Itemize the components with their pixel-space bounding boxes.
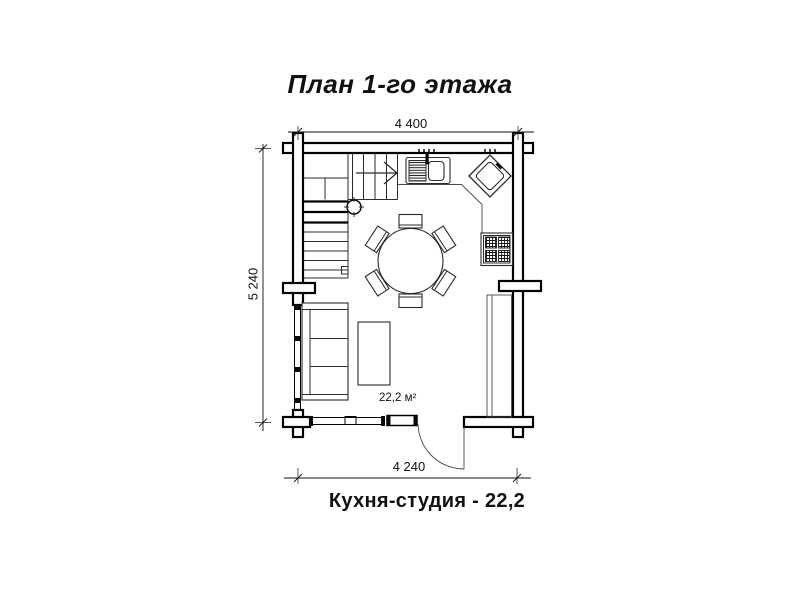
floor-plan-drawing: План 1-го этажа — [0, 0, 800, 600]
round-dining-table — [378, 229, 443, 294]
sofa — [302, 303, 348, 400]
dining-chair — [399, 294, 422, 308]
burner — [486, 237, 497, 248]
window-left — [294, 305, 301, 410]
dimension-top: 4 400 — [288, 116, 534, 140]
wall-left-upper — [293, 133, 303, 305]
log-cross-left — [283, 283, 315, 293]
faucet-icon — [425, 153, 429, 165]
dimension-left: 5 240 — [246, 144, 272, 431]
window-bottom — [309, 416, 385, 426]
dim-bottom-value: 4 240 — [393, 459, 426, 474]
tall-cabinet — [487, 295, 512, 417]
plan-caption: Кухня-студия - 22,2 — [329, 490, 525, 512]
coffee-table — [358, 322, 390, 385]
dim-top-value: 4 400 — [395, 116, 428, 131]
stair-direction-arrow — [356, 162, 397, 184]
wall-bottom-right — [464, 417, 533, 427]
dining-chair — [399, 215, 422, 229]
room-area-label: 22,2 м² — [379, 392, 416, 404]
dining-group — [365, 215, 456, 308]
dimension-bottom: 4 240 — [284, 459, 531, 484]
floor-plan-page: План 1-го этажа — [0, 0, 800, 600]
kitchen-sink — [406, 153, 450, 184]
stove — [481, 233, 513, 266]
dim-left-value: 5 240 — [246, 268, 261, 301]
sink-bowl — [429, 162, 445, 181]
burner — [499, 237, 510, 248]
sink-drainer — [409, 161, 426, 182]
page-title: План 1-го этажа — [287, 69, 512, 99]
door-leaf-closed — [387, 416, 417, 426]
burner — [486, 251, 497, 262]
wall-bottom-left — [283, 417, 310, 427]
corner-sink — [469, 155, 511, 197]
log-cross-right — [499, 281, 541, 291]
burner — [499, 251, 510, 262]
